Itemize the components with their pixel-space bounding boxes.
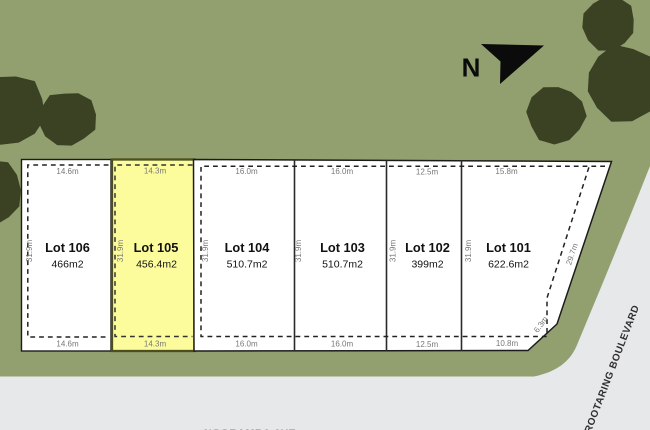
svg-text:456.4m2: 456.4m2 xyxy=(136,259,177,271)
svg-text:510.7m2: 510.7m2 xyxy=(227,259,268,271)
svg-text:Lot 101: Lot 101 xyxy=(486,240,531,255)
svg-text:31.9m: 31.9m xyxy=(389,240,398,263)
svg-text:12.5m: 12.5m xyxy=(416,340,439,349)
svg-text:31.9m: 31.9m xyxy=(201,240,210,263)
svg-text:16.0m: 16.0m xyxy=(235,340,258,349)
svg-text:Lot 105: Lot 105 xyxy=(134,240,179,255)
svg-text:14.3m: 14.3m xyxy=(144,167,167,176)
svg-text:31.9m: 31.9m xyxy=(464,240,473,263)
svg-text:399m2: 399m2 xyxy=(411,259,443,271)
svg-text:16.0m: 16.0m xyxy=(331,340,354,349)
svg-text:10.8m: 10.8m xyxy=(496,339,519,348)
svg-text:622.6m2: 622.6m2 xyxy=(488,259,529,271)
svg-text:466m2: 466m2 xyxy=(51,259,83,271)
svg-text:510.7m2: 510.7m2 xyxy=(322,259,363,271)
svg-text:14.6m: 14.6m xyxy=(56,340,79,349)
svg-text:15.8m: 15.8m xyxy=(495,167,518,176)
svg-text:Lot 106: Lot 106 xyxy=(45,240,90,255)
svg-text:Lot 103: Lot 103 xyxy=(320,240,365,255)
svg-text:31.9m: 31.9m xyxy=(116,240,125,263)
svg-text:16.0m: 16.0m xyxy=(235,167,258,176)
svg-text:14.3m: 14.3m xyxy=(144,340,167,349)
svg-text:Lot 104: Lot 104 xyxy=(225,240,271,255)
svg-text:31.9m: 31.9m xyxy=(25,240,34,263)
svg-text:12.5m: 12.5m xyxy=(416,168,439,177)
svg-text:Lot 102: Lot 102 xyxy=(405,240,450,255)
svg-text:16.0m: 16.0m xyxy=(331,167,354,176)
svg-text:14.6m: 14.6m xyxy=(56,167,79,176)
svg-text:N: N xyxy=(462,53,481,83)
svg-text:31.9m: 31.9m xyxy=(294,240,303,263)
